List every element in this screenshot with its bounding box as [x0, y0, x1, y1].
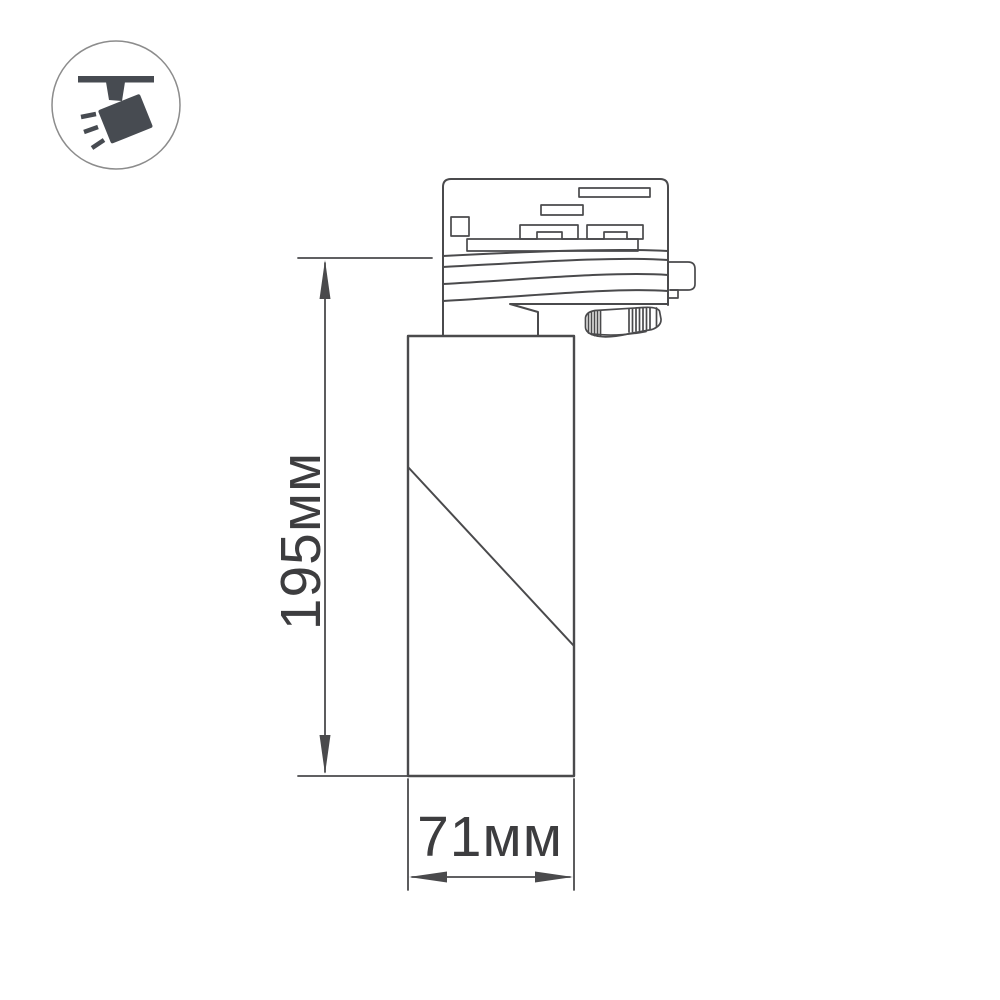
arrowhead-right — [535, 872, 573, 883]
stem-shape — [106, 82, 125, 101]
spot-head-shape — [98, 94, 153, 144]
width-dimension: 71мм — [408, 779, 574, 890]
adjustment-knob — [586, 307, 662, 337]
luminaire-body — [408, 336, 574, 776]
dimensional-drawing-page: 195мм 71мм — [0, 0, 1000, 1000]
arrowhead-up — [320, 260, 331, 299]
adapter-housing-outline — [443, 179, 668, 335]
adapter-contacts — [451, 188, 650, 251]
locking-tab — [668, 262, 695, 298]
track-light-badge — [52, 41, 180, 169]
ceiling-track-spotlight-icon — [78, 76, 154, 148]
height-dimension-label: 195мм — [269, 452, 333, 630]
track-bar-shape — [78, 76, 154, 83]
body-seam-line — [408, 467, 574, 646]
technical-drawing: 195мм 71мм — [0, 0, 1000, 1000]
width-dimension-label: 71мм — [417, 805, 563, 869]
arrowhead-left — [409, 872, 447, 883]
adapter-rings — [443, 250, 668, 301]
arrowhead-down — [320, 735, 331, 774]
light-rays-icon — [81, 114, 104, 148]
